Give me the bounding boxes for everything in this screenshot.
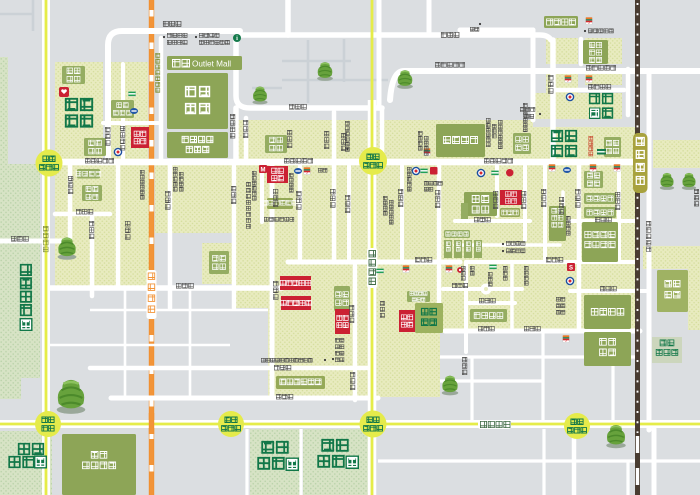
svg-text:M: M	[261, 168, 266, 174]
svg-text:S: S	[569, 266, 573, 272]
svg-text:Outlet Mall: Outlet Mall	[192, 59, 231, 68]
